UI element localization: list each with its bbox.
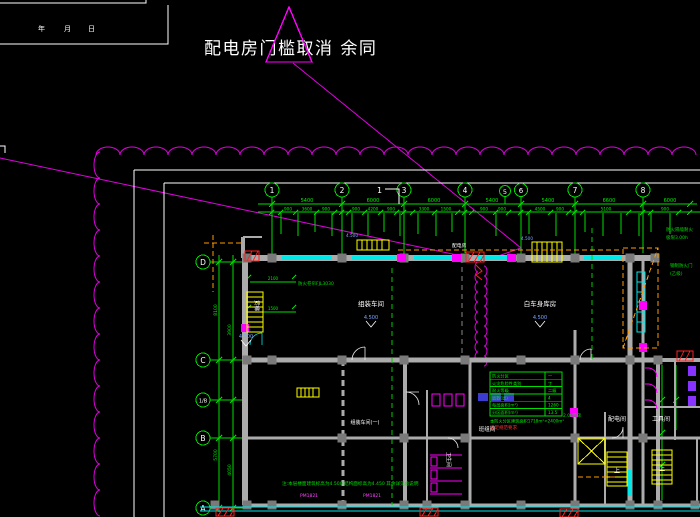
structural-columns [211,254,700,510]
fire-wall-note-2: 极限3.00h [666,234,688,241]
axis-top-7: 7 [573,186,578,195]
dim-sub: 4200 [368,207,379,212]
axis-top-3: 3 [402,186,407,195]
room-label-zuzhuang1: 组装车间(一) [351,419,380,426]
schedule-cell: 一 [548,374,552,379]
dim-left: 5700 [213,449,219,461]
schedule-cell: 二级 [548,387,557,394]
cad-drawing: 年 月 日 配电房门槛取消 余同 [0,0,700,517]
fire-door-note-2: (乙级) [670,270,683,277]
stair-up-label-2: 上 [659,465,665,473]
lift-tag: 2.0t货梯 [563,412,581,419]
fire-shutter-dashed-lines [392,228,592,505]
level-markers: 4.500 4.500 4.500 4.500 4.500 [239,233,547,340]
level-value: 4.500 [364,315,378,321]
dim-top: 5400 [486,198,499,204]
room-label-banzujian: 班组间 [479,425,496,433]
revision-marker-number: 1 [377,186,382,195]
schedule-cell: 火灾危险性类别 [492,380,521,387]
dim-sub: 3600 [302,207,313,212]
revision-position-marker: 1 [377,186,399,204]
titleblock-year: 年 [38,24,45,33]
schedule-note-green: 本防火分区建筑面积1718m²<2400m² [490,418,564,425]
schedule-text: 防火分区一 火灾危险性类别丁 耐火等级二级 层数(层)4 每层面积(m²)126… [490,373,564,432]
urinal-fixtures [688,366,696,406]
dim-top: 5400 [301,198,314,204]
axis-left-B: B [200,434,205,443]
schedule-cell: 层数(层) [492,394,508,401]
axis-left-C: C [200,356,205,365]
dim-sub: 900 [284,207,292,212]
dim-sub: 900 [387,207,395,212]
axis-left-D: D [200,258,206,267]
room-label-baicheshen: 白车身库房 [524,299,557,308]
schedule-cell: 4 [548,395,551,400]
dim-left: 3900 [227,324,233,336]
level-value: 4.500 [521,236,533,241]
room-label-huoti: 货梯 [253,300,261,312]
level-triangles [241,321,545,346]
fire-door-note-1: 钢制防火门 [670,262,693,269]
title-block [0,0,168,44]
room-label-peidianfang: 配电房 [452,242,467,249]
cad-canvas: 年 月 日 配电房门槛取消 余同 [0,0,700,517]
dimension-numbers-left: 8100 3900 5700 4050 [213,304,233,476]
level-value: 4.500 [239,334,253,340]
grid-bubbles-left: D C 1/B B A [196,255,210,515]
axis-left-1B: 1/B [199,399,208,405]
stair-symbols [247,240,672,486]
wall-vents [241,254,647,417]
revision-leader-lines [0,63,521,261]
dim-top: 5400 [542,198,555,204]
dim-sub: 900 [480,207,488,212]
dim-sub: 900 [498,207,506,212]
dim-sub: 900 [556,207,564,212]
schedule-cell: 防火分区 [492,373,509,380]
revision-cloud-center [475,262,487,366]
room-label-gongjujian: 工具间 [652,415,670,423]
elevator-symbol [578,438,605,464]
dim-left: 4050 [227,464,233,476]
dim-sub: 900 [352,207,360,212]
dimension-numbers-inner: 2100 1500 [268,276,279,311]
room-label-weishengjian: 卫生间 [445,452,452,467]
schedule-cell: 丁 [548,381,552,386]
axis-top-4: 4 [463,186,468,195]
dim-sub: 3300 [419,207,430,212]
schedule-cell: 1260 [548,403,559,408]
titleblock-day: 日 [88,25,95,33]
dim-sub: 900 [322,207,330,212]
dim-left: 8100 [213,304,219,316]
schedule-cell: 分区面积(m²) [492,409,518,416]
schedule-cell: 每层面积(m²) [492,402,518,409]
dim-top: 6000 [428,198,441,204]
dim-sub: 4500 [535,207,546,212]
axis-top-5: 5 [503,188,507,196]
fire-door-tag-1: PM1821 [300,493,318,499]
dim-inner: 2100 [268,276,279,281]
dim-inner: 1500 [268,306,279,311]
titleblock-month: 月 [64,25,71,33]
fire-shutter-tag: 防火卷帘FJL3030 [298,280,334,287]
dim-sub: 900 [661,207,669,212]
revision-note-text: 配电房门槛取消 余同 [204,39,377,59]
axis-top-2: 2 [340,186,345,195]
fire-door-tag-2: PM1821 [363,493,381,499]
window-lines [200,258,700,511]
schedule-cell: 耐火等级 [492,387,510,394]
level-value: 4.500 [346,233,358,238]
dimension-numbers-top-main: 5400 6000 6000 5400 5400 6600 6000 [301,198,677,204]
grid-bubbles-top: 1 2 3 4 5 6 7 8 [265,183,650,197]
floor-level-note: 注:本层楼面建筑标高为4.500 结构面标高为4.450 其余详见总说明 [282,480,419,487]
room-label-zuzhuang: 组装车间 [358,299,384,308]
dim-sub: 5100 [601,207,612,212]
dim-top: 6000 [664,198,677,204]
dim-sub: 1500 [441,207,452,212]
room-label-peidianjian: 配电间 [608,415,626,423]
schedule-cell: 13.5 [548,410,558,415]
axis-top-8: 8 [641,186,646,195]
revision-cloud-left [94,152,100,516]
fire-wall-note-1: 防火隔墙耐火 [666,226,693,233]
stair-up-label-1: 上 [614,467,620,475]
revision-cloud-top [96,147,696,155]
dim-top: 6000 [367,198,380,204]
axis-top-6: 6 [519,187,524,195]
axis-top-1: 1 [270,186,275,195]
walls [243,237,700,505]
level-value: 4.500 [533,315,547,321]
dim-top: 6600 [603,198,616,204]
